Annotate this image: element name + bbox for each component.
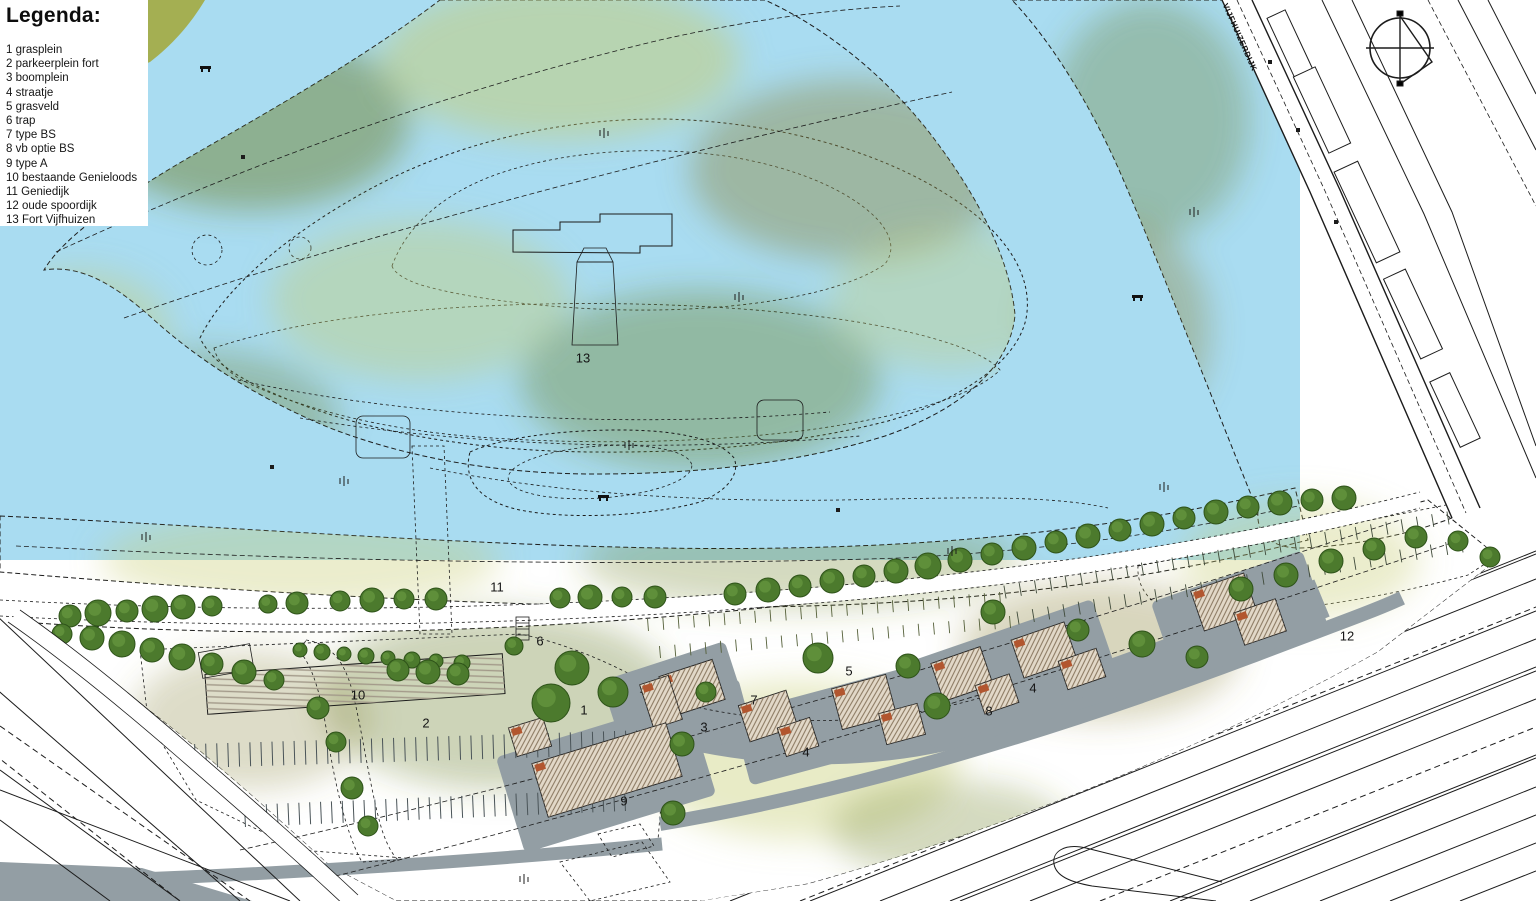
tree-icon xyxy=(360,588,384,612)
tree-icon xyxy=(116,600,138,622)
map-dot xyxy=(836,508,840,512)
tree-icon xyxy=(803,643,833,673)
tree-icon xyxy=(416,660,440,684)
map-dot xyxy=(1296,128,1300,132)
map-dot xyxy=(270,465,274,469)
tree-icon xyxy=(1129,631,1155,657)
tree-icon xyxy=(358,816,378,836)
tree-icon xyxy=(724,583,746,605)
tree-icon xyxy=(202,596,222,616)
tree-icon xyxy=(264,670,284,690)
tree-icon xyxy=(532,684,570,722)
tree-icon xyxy=(1186,646,1208,668)
tree-icon xyxy=(924,693,950,719)
tree-icon xyxy=(853,565,875,587)
tree-icon xyxy=(142,596,168,622)
tree-icon xyxy=(1204,500,1228,524)
tree-icon xyxy=(80,626,104,650)
legend-item: 12 oude spoordijk xyxy=(6,199,142,213)
tree-icon xyxy=(550,588,570,608)
tree-icon xyxy=(661,801,685,825)
tree-icon xyxy=(789,575,811,597)
tree-icon xyxy=(201,653,223,675)
grass-tuft-icon xyxy=(520,874,528,884)
legend-item: 9 type A xyxy=(6,157,142,171)
legend-item: 7 type BS xyxy=(6,128,142,142)
tree-icon xyxy=(1319,549,1343,573)
legend-item: 5 grasveld xyxy=(6,100,142,114)
tree-icon xyxy=(1268,491,1292,515)
tree-icon xyxy=(394,589,414,609)
legend-panel: Legenda: 1 grasplein2 parkeerplein fort3… xyxy=(0,0,148,226)
tree-icon xyxy=(1363,538,1385,560)
tree-icon xyxy=(1229,577,1253,601)
tree-icon xyxy=(644,586,666,608)
tree-icon xyxy=(1405,526,1427,548)
legend-item: 8 vb optie BS xyxy=(6,142,142,156)
tree-icon xyxy=(1237,496,1259,518)
legend-item: 1 grasplein xyxy=(6,43,142,57)
tree-icon xyxy=(1109,519,1131,541)
tree-icon xyxy=(598,677,628,707)
tree-icon xyxy=(169,644,195,670)
tree-icon xyxy=(314,644,330,660)
legend-item: 10 bestaande Genieloods xyxy=(6,171,142,185)
legend-item: 4 straatje xyxy=(6,86,142,100)
tree-icon xyxy=(425,588,447,610)
tree-icon xyxy=(1274,563,1298,587)
tree-icon xyxy=(307,697,329,719)
tree-icon xyxy=(896,654,920,678)
legend-item: 3 boomplein xyxy=(6,71,142,85)
tree-icon xyxy=(1012,536,1036,560)
tree-icon xyxy=(505,637,523,655)
legend-item: 11 Geniedijk xyxy=(6,185,142,199)
tree-icon xyxy=(341,777,363,799)
tree-icon xyxy=(1140,512,1164,536)
tree-icon xyxy=(286,592,308,614)
tree-icon xyxy=(1332,486,1356,510)
tree-icon xyxy=(756,578,780,602)
tree-icon xyxy=(981,600,1005,624)
legend-list: 1 grasplein2 parkeerplein fort3 boomplei… xyxy=(6,43,142,228)
tree-icon xyxy=(109,631,135,657)
legend-item: 6 trap xyxy=(6,114,142,128)
site-plan-map xyxy=(0,0,1536,901)
tree-icon xyxy=(1076,524,1100,548)
tree-icon xyxy=(387,659,409,681)
tree-icon xyxy=(1301,489,1323,511)
tree-icon xyxy=(171,595,195,619)
site-plan: Legenda: 1 grasplein2 parkeerplein fort3… xyxy=(0,0,1536,901)
tree-icon xyxy=(337,647,351,661)
legend-title: Legenda: xyxy=(6,4,142,28)
map-dot xyxy=(1268,60,1272,64)
tree-icon xyxy=(447,663,469,685)
tree-icon xyxy=(1480,547,1500,567)
tree-icon xyxy=(696,682,716,702)
legend-item: 2 parkeerplein fort xyxy=(6,57,142,71)
tree-icon xyxy=(578,585,602,609)
tree-icon xyxy=(981,543,1003,565)
tree-icon xyxy=(140,638,164,662)
tree-icon xyxy=(884,559,908,583)
tree-icon xyxy=(330,591,350,611)
tree-icon xyxy=(1045,531,1067,553)
tree-icon xyxy=(293,643,307,657)
tree-icon xyxy=(820,569,844,593)
tree-icon xyxy=(1448,531,1468,551)
tree-icon xyxy=(232,660,256,684)
tree-icon xyxy=(358,648,374,664)
tree-icon xyxy=(612,587,632,607)
tree-icon xyxy=(1173,507,1195,529)
tree-icon xyxy=(915,553,941,579)
tree-icon xyxy=(1067,619,1089,641)
tree-icon xyxy=(670,732,694,756)
map-dot xyxy=(1334,220,1338,224)
legend-item: 13 Fort Vijfhuizen xyxy=(6,213,142,227)
map-dot xyxy=(241,155,245,159)
tree-icon xyxy=(555,651,589,685)
tree-icon xyxy=(85,600,111,626)
tree-icon xyxy=(326,732,346,752)
tree-icon xyxy=(259,595,277,613)
